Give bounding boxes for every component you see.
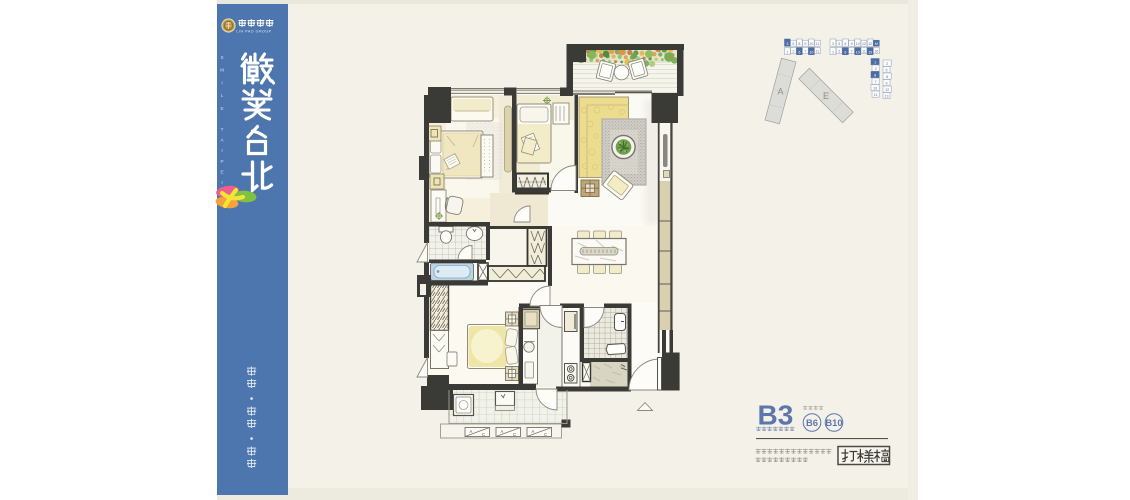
svg-text:1: 1 xyxy=(832,50,834,54)
svg-text:C: C xyxy=(482,432,485,437)
svg-text:11: 11 xyxy=(816,42,820,46)
svg-text:B6: B6 xyxy=(806,417,818,428)
svg-text:3: 3 xyxy=(786,42,788,46)
svg-text:9: 9 xyxy=(886,81,888,85)
svg-text:8: 8 xyxy=(844,42,846,46)
svg-text:7: 7 xyxy=(851,49,853,53)
svg-text:E: E xyxy=(823,91,829,101)
svg-text:11: 11 xyxy=(816,49,820,53)
svg-text:2: 2 xyxy=(838,49,840,53)
svg-text:P: P xyxy=(220,159,223,164)
svg-text:A: A xyxy=(501,429,504,434)
svg-text:10: 10 xyxy=(809,50,813,54)
svg-text:E: E xyxy=(220,169,223,174)
svg-text:C: C xyxy=(513,432,516,437)
svg-text:B10: B10 xyxy=(825,417,842,428)
svg-text:6: 6 xyxy=(798,50,800,54)
svg-text:I: I xyxy=(221,80,222,85)
svg-text:C: C xyxy=(544,432,547,437)
svg-text:LIH PAO GROUP: LIH PAO GROUP xyxy=(236,29,271,33)
svg-text:E: E xyxy=(220,106,223,111)
svg-text:11: 11 xyxy=(862,49,866,53)
svg-text:7: 7 xyxy=(875,80,877,84)
svg-text:2: 2 xyxy=(875,67,877,71)
svg-text:5: 5 xyxy=(792,42,794,46)
svg-text:10: 10 xyxy=(809,42,813,46)
svg-text:A: A xyxy=(532,429,535,434)
svg-text:I: I xyxy=(221,180,222,185)
svg-text:12: 12 xyxy=(885,88,889,92)
svg-text:11: 11 xyxy=(874,93,878,97)
svg-text:10: 10 xyxy=(856,50,860,54)
svg-text:7: 7 xyxy=(804,49,806,53)
svg-text:M: M xyxy=(220,68,224,73)
svg-text:T: T xyxy=(221,127,224,132)
svg-text:10: 10 xyxy=(873,86,877,90)
svg-text:13: 13 xyxy=(885,94,889,98)
svg-text:3: 3 xyxy=(832,42,834,46)
svg-text:10: 10 xyxy=(856,42,860,46)
svg-text:8: 8 xyxy=(886,75,888,79)
svg-text:8: 8 xyxy=(874,73,876,77)
svg-text:A: A xyxy=(470,429,473,434)
svg-text:5: 5 xyxy=(886,68,888,72)
svg-text:5: 5 xyxy=(838,42,840,46)
svg-text:B3: B3 xyxy=(758,400,794,431)
svg-text:9: 9 xyxy=(851,42,853,46)
svg-text:12: 12 xyxy=(862,42,866,46)
svg-text:2: 2 xyxy=(792,49,794,53)
svg-text:1: 1 xyxy=(874,60,876,64)
svg-text:I: I xyxy=(221,148,222,153)
svg-text:M: M xyxy=(875,42,878,46)
svg-text:2: 2 xyxy=(886,62,888,66)
svg-text:L: L xyxy=(221,93,224,98)
svg-text:1: 1 xyxy=(786,50,788,54)
svg-text:9: 9 xyxy=(804,42,806,46)
svg-text:8: 8 xyxy=(798,42,800,46)
svg-text:A: A xyxy=(777,87,783,97)
svg-text:6: 6 xyxy=(844,50,846,54)
svg-text:S: S xyxy=(220,55,223,60)
svg-text:15: 15 xyxy=(868,50,872,54)
svg-text:16: 16 xyxy=(874,49,878,53)
svg-text:12: 12 xyxy=(868,42,872,46)
